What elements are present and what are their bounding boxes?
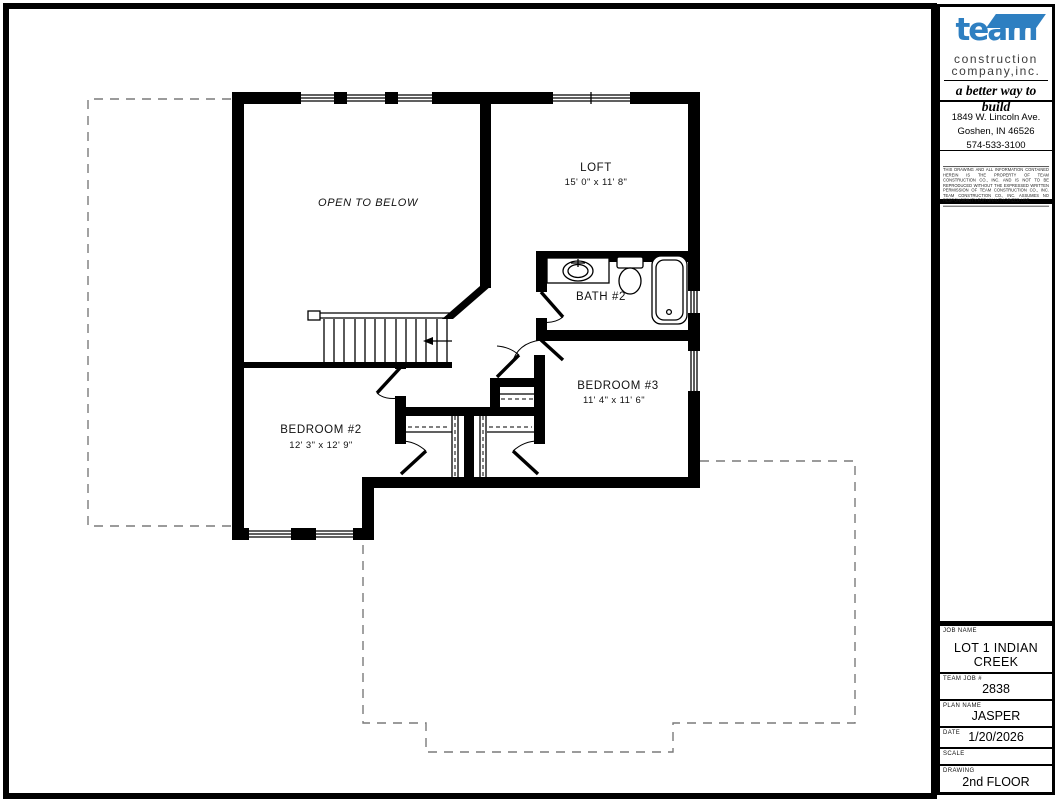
field-plan-name: PLAN NAME JASPER <box>940 701 1052 728</box>
field-team-job: TEAM JOB # 2838 <box>940 674 1052 701</box>
wall-loft-divider <box>480 92 491 288</box>
wall-right <box>688 92 700 488</box>
field-label: DRAWING <box>943 768 975 774</box>
wall-left <box>232 92 244 540</box>
door-linen-closet <box>497 346 519 377</box>
fixture-vanity-sink <box>547 258 609 283</box>
window <box>398 92 432 104</box>
title-block: team construction company,inc. a better … <box>937 4 1055 795</box>
wall-linen-top <box>497 378 545 387</box>
address-line2: Goshen, IN 46526 <box>940 125 1052 139</box>
closet-shelf-left <box>406 427 452 432</box>
logo-brand-text: team <box>955 12 1036 48</box>
window-bath <box>688 291 700 313</box>
field-label: JOB NAME <box>943 628 977 634</box>
staircase <box>308 311 452 362</box>
dims-loft: 15' 0" x 11' 8" <box>565 177 628 188</box>
wall-bath-left-upper <box>536 251 547 292</box>
window <box>301 92 334 104</box>
field-date: DATE 1/20/2026 <box>940 728 1052 749</box>
door-closet-right <box>513 441 538 474</box>
company-logo: team construction company,inc. a better … <box>940 7 1052 100</box>
dims-bedroom3: 11' 4" x 11' 6" <box>583 395 645 406</box>
fixture-toilet <box>617 257 643 294</box>
newel-post <box>308 311 320 320</box>
wall-bath-bottom <box>536 330 700 341</box>
floor-plan-drawing: OPEN TO BELOW LOFT 15' 0" x 11' 8" BATH … <box>0 0 1062 802</box>
roof-outline-right <box>363 461 855 752</box>
wall-hall-left-lower <box>395 396 406 444</box>
dims-bedroom2: 12' 3" x 12' 9" <box>289 440 352 451</box>
wall-stair-diagonal <box>442 286 491 319</box>
door-closet-left <box>401 441 426 474</box>
field-job-name: JOB NAME LOT 1 INDIAN CREEK <box>940 626 1052 674</box>
label-bedroom2: BEDROOM #2 <box>280 424 361 436</box>
roof-outline-left <box>88 99 231 526</box>
wall-hall-left-upper <box>395 362 406 369</box>
field-value: JASPER <box>940 709 1052 723</box>
field-value: 2838 <box>940 682 1052 696</box>
field-value: LOT 1 INDIAN CREEK <box>940 641 1052 669</box>
closet-shelf-right <box>487 427 534 432</box>
label-open-to-below: OPEN TO BELOW <box>318 197 419 209</box>
wall-closet-right <box>534 355 545 444</box>
field-scale: SCALE <box>940 749 1052 766</box>
wall-closet-top <box>395 407 545 416</box>
label-loft: LOFT <box>580 162 612 174</box>
logo-line2: company,inc. <box>940 65 1052 77</box>
window <box>347 92 385 104</box>
door-bedroom2 <box>377 368 400 398</box>
field-value: 2nd FLOOR <box>940 775 1052 789</box>
wall-stair-bottom <box>232 362 452 368</box>
wall-closet-center <box>464 416 474 477</box>
field-value: 1/20/2026 <box>940 730 1052 744</box>
field-label: SCALE <box>943 751 965 757</box>
linen-shelf <box>500 394 534 399</box>
revision-box <box>940 204 1052 626</box>
label-bath2: BATH #2 <box>576 291 626 303</box>
fixture-bathtub <box>652 256 687 324</box>
label-bedroom3: BEDROOM #3 <box>577 380 658 392</box>
wall-bottom <box>362 477 700 488</box>
logo-tagline: a better way to build <box>944 80 1048 115</box>
window-bedroom3 <box>688 351 700 391</box>
disclaimer-text: THIS DRAWING AND ALL INFORMATION CONTAIN… <box>943 166 1049 206</box>
field-drawing: DRAWING 2nd FLOOR <box>940 766 1052 792</box>
door-bath2 <box>541 292 563 322</box>
disclaimer-box: THIS DRAWING AND ALL INFORMATION CONTAIN… <box>940 150 1052 199</box>
window-loft <box>553 92 630 104</box>
window <box>316 528 353 540</box>
window <box>249 528 291 540</box>
